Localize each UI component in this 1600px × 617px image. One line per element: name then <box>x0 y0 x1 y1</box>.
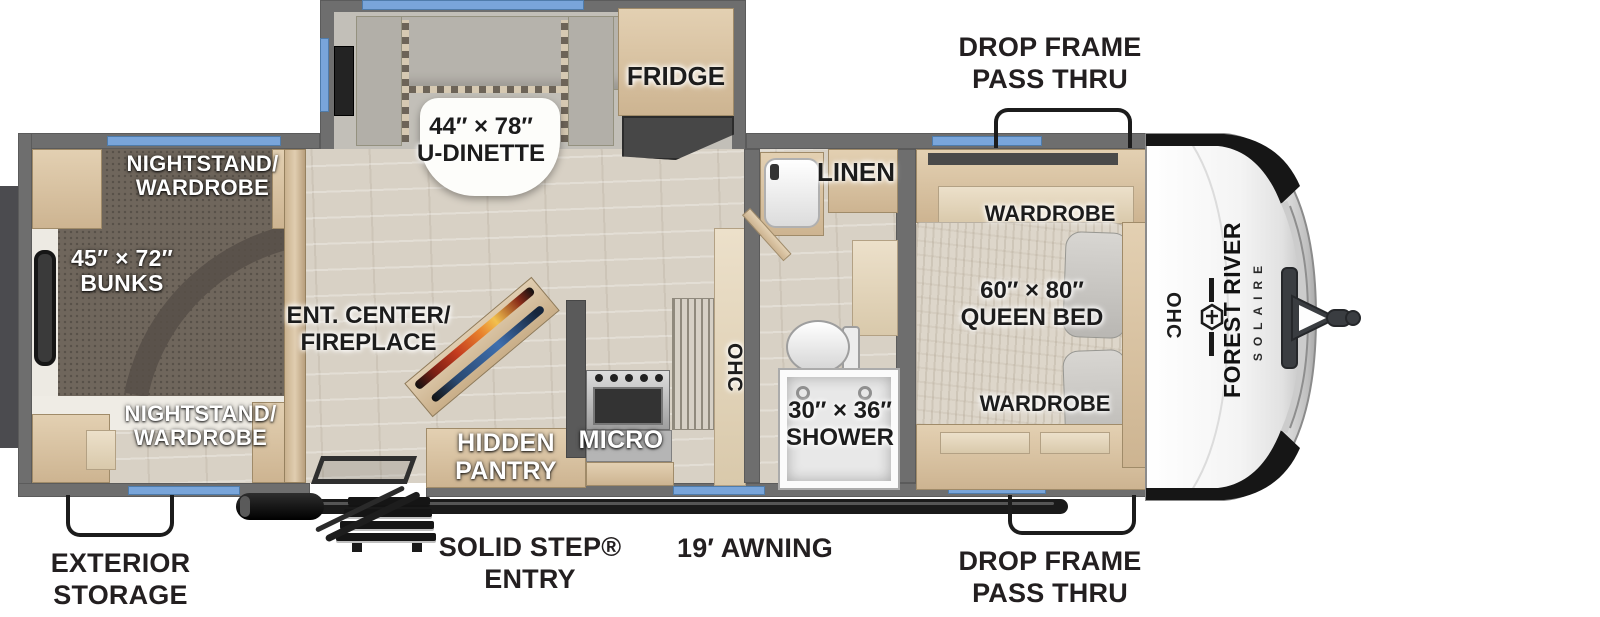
hitch <box>1282 268 1360 368</box>
hitch-coupler-tip <box>1346 311 1360 325</box>
bedroom-drawer <box>940 432 1030 454</box>
burner-icon <box>625 374 633 382</box>
dinette-window-top <box>362 0 584 10</box>
fridge-label: FRIDGE <box>614 62 738 91</box>
nightstand-top-label: NIGHTSTAND/ WARDROBE <box>100 152 305 200</box>
brand-name: FOREST RIVER <box>1219 222 1245 398</box>
wardrobe-top-label: WARDROBE <box>962 202 1138 227</box>
burner-icon <box>610 374 618 382</box>
burner-icon <box>640 374 648 382</box>
bunks-label: 45″ × 72″ BUNKS <box>48 246 196 297</box>
drop-frame-top-label: DROP FRAME PASS THRU <box>948 32 1152 96</box>
stove <box>586 370 670 430</box>
queen-bed-label: 60″ × 80″ QUEEN BED <box>936 278 1128 332</box>
rear-bottom-window <box>128 486 240 495</box>
kitchen-ohc-label: OHC <box>712 330 746 406</box>
faucet-icon <box>770 164 779 180</box>
step-tread <box>336 533 436 541</box>
exterior-storage-label: EXTERIOR STORAGE <box>28 548 213 612</box>
bedroom-top-slot <box>928 153 1118 165</box>
awning-roller-cap <box>240 496 250 517</box>
dinette-window-left <box>320 38 329 112</box>
rear-wardrobe-cabinet <box>32 149 102 229</box>
passthru-door-top <box>994 108 1132 148</box>
ent-center-label: ENT. CENTER/ FIREPLACE <box>286 303 451 357</box>
louvered-cabinet <box>672 298 714 430</box>
dinette-cushion-right <box>568 16 614 146</box>
front-ohc-label: OHC <box>1152 278 1184 354</box>
oven-door <box>593 387 663 425</box>
step-foot <box>412 543 422 552</box>
kitchen-counter-bottom <box>586 462 674 486</box>
burner-icon <box>655 374 663 382</box>
solid-step-label: SOLID STEP® ENTRY <box>430 532 630 596</box>
left-wall <box>18 133 32 497</box>
entry-door-frame <box>311 456 417 484</box>
bath-wall-left <box>744 149 760 483</box>
kitchen-bottom-window <box>673 486 765 495</box>
brand-model: SOLAIRE <box>1251 259 1265 361</box>
linen-label: LINEN <box>800 158 912 187</box>
floorplan: NIGHTSTAND/ WARDROBE 45″ × 72″ BUNKS NIG… <box>0 0 1600 617</box>
awning-label: 19′ AWNING <box>640 533 870 565</box>
burner-icon <box>595 374 603 382</box>
bedroom-drawer <box>1040 432 1110 454</box>
nightstand-bottom-label: NIGHTSTAND/ WARDROBE <box>98 402 303 450</box>
dinette-label: 44″ × 78″ U-DINETTE <box>388 114 574 168</box>
bath-shelf <box>852 240 898 336</box>
tv-icon <box>334 46 354 116</box>
hidden-pantry-label: HIDDEN PANTRY <box>436 430 576 485</box>
passthru-door-bottom <box>1008 495 1136 535</box>
drop-frame-bottom-label: DROP FRAME PASS THRU <box>948 546 1152 610</box>
exterior-storage-door <box>66 495 174 537</box>
step-foot <box>352 543 362 552</box>
wardrobe-bottom-label: WARDROBE <box>946 392 1144 417</box>
rear-bumper <box>0 186 18 448</box>
rear-top-window <box>107 136 281 146</box>
shower-label: 30″ × 36″ SHOWER <box>780 398 900 452</box>
micro-label: MICRO <box>562 427 680 455</box>
dinette-trim-back <box>409 86 561 93</box>
toilet-bowl <box>786 320 850 374</box>
